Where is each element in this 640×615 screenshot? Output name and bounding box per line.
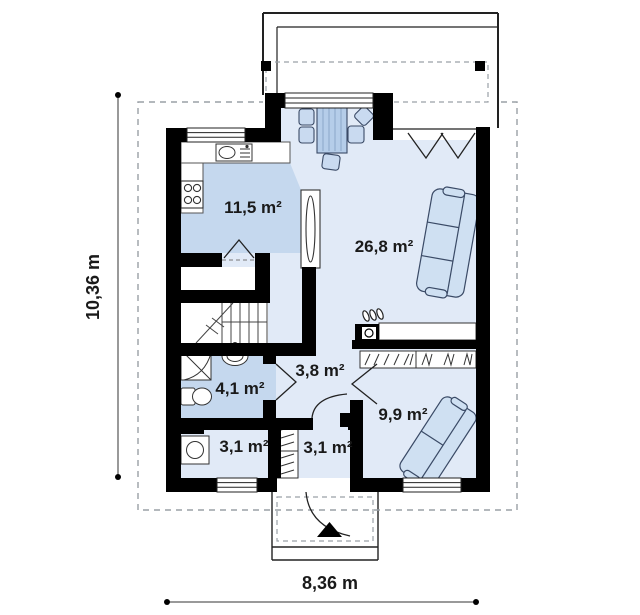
kitchen-sink-icon — [216, 144, 252, 161]
chair-icon — [299, 109, 314, 125]
label-utility-area: 3,1 m² — [219, 437, 268, 456]
wardrobe-bedroom-icon — [360, 351, 476, 368]
terrace-post-right — [475, 61, 485, 71]
label-hallway-area: 3,8 m² — [295, 361, 344, 380]
chair-icon — [322, 153, 341, 170]
washing-machine-icon — [181, 436, 209, 464]
label-kitchen-area: 11,5 m² — [224, 198, 282, 217]
floor-plan: 11,5 m² 26,8 m² 4,1 m² 3,8 m² 9,9 m² 3,1… — [0, 0, 640, 615]
label-bedroom-area: 9,9 m² — [378, 405, 427, 424]
tall-cabinet-icon — [301, 190, 320, 268]
window-bedroom — [403, 478, 461, 492]
window-dining — [285, 93, 373, 108]
dimension-width: 8,36 m — [164, 573, 479, 605]
fireplace-bench — [379, 323, 476, 340]
chair-icon — [348, 126, 364, 143]
terrace-post-left — [261, 61, 271, 71]
chair-icon — [299, 127, 314, 143]
dimension-height: 10,36 m — [83, 92, 121, 480]
stair-well — [181, 303, 268, 343]
height-dimension-label: 10,36 m — [83, 254, 103, 320]
toilet-icon — [181, 388, 212, 405]
dining-table-icon — [317, 103, 347, 153]
stair-landing — [181, 267, 257, 290]
label-bathroom-area: 4,1 m² — [215, 379, 264, 398]
width-dimension-label: 8,36 m — [302, 573, 358, 593]
label-living-area: 26,8 m² — [355, 237, 414, 256]
window-kitchen — [187, 128, 245, 142]
kitchen-hob-icon — [181, 181, 203, 208]
floor-plan-svg: 11,5 m² 26,8 m² 4,1 m² 3,8 m² 9,9 m² 3,1… — [0, 0, 640, 615]
window-utility — [217, 478, 257, 492]
label-entrance-hall-area: 3,1 m² — [303, 438, 352, 457]
